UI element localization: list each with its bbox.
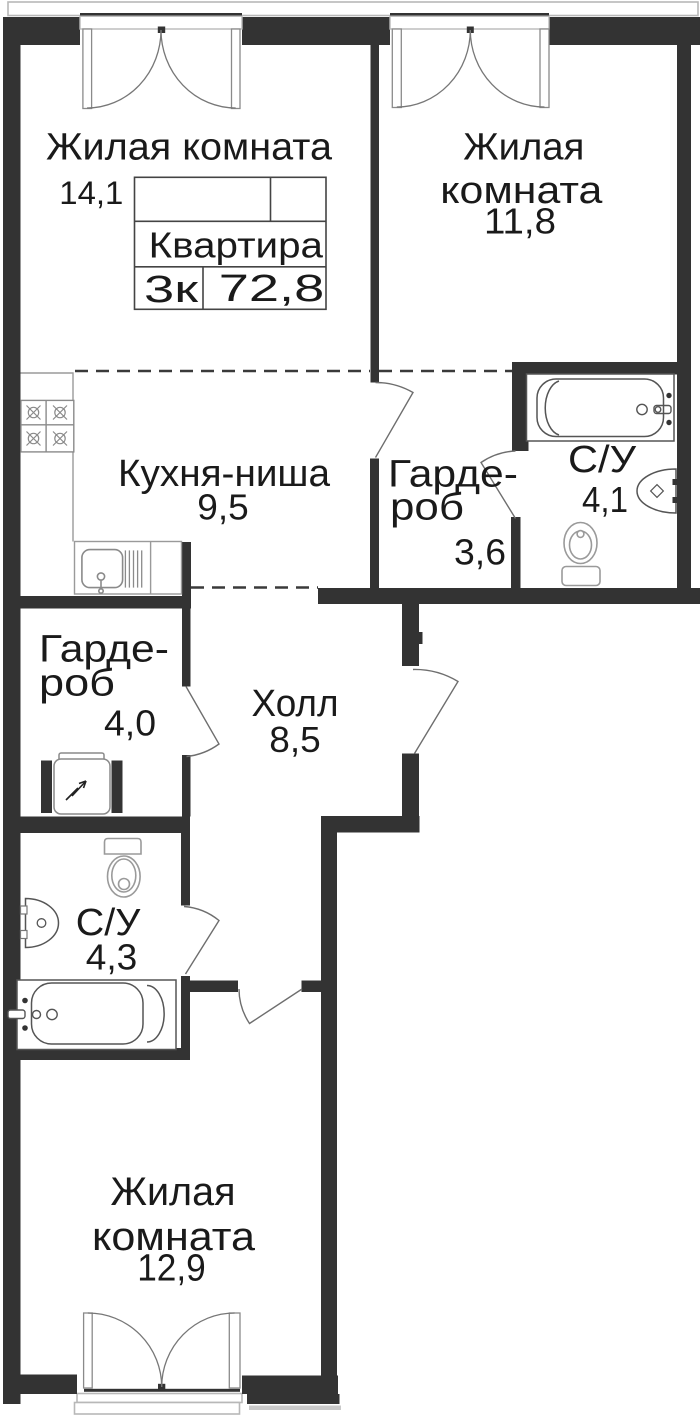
svg-text:14,1: 14,1 [59,175,123,211]
svg-text:12,9: 12,9 [137,1248,206,1290]
svg-text:72,8: 72,8 [219,268,325,310]
svg-text:роб: роб [39,663,115,705]
svg-text:3к: 3к [144,269,199,311]
svg-text:С/У: С/У [568,439,637,481]
svg-text:Жилая комната: Жилая комната [46,127,333,169]
svg-text:Жилая: Жилая [463,127,584,169]
svg-text:роб: роб [390,487,464,529]
svg-text:4,0: 4,0 [104,703,156,744]
svg-text:4,1: 4,1 [582,479,628,520]
svg-text:4,3: 4,3 [86,937,138,978]
svg-text:Жилая: Жилая [111,1170,236,1214]
svg-text:Квартира: Квартира [149,224,324,265]
svg-text:3,6: 3,6 [454,532,506,573]
svg-text:9,5: 9,5 [197,487,249,528]
svg-text:8,5: 8,5 [269,719,321,760]
svg-text:11,8: 11,8 [484,201,556,242]
